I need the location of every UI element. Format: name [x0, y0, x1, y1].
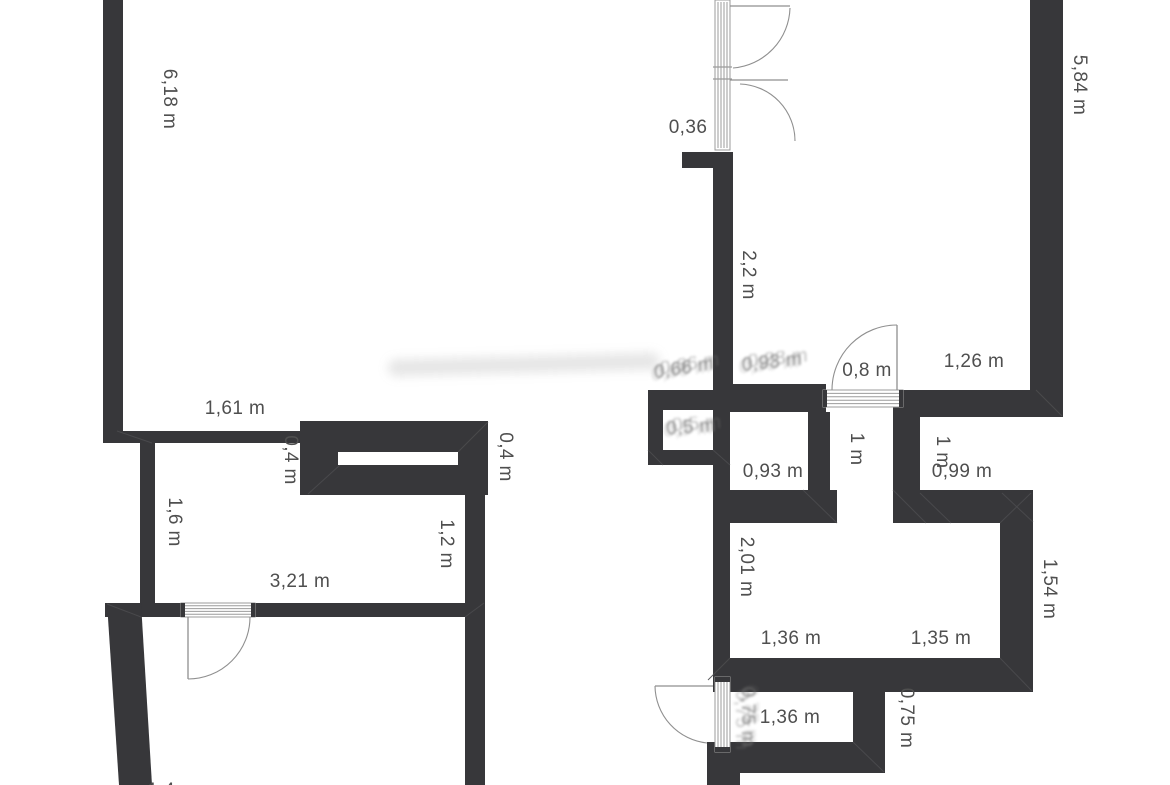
- entry-door-frame: [715, 0, 730, 150]
- bottomroom-bottom-wall-wall: [713, 658, 1033, 692]
- small-room-threshold: [181, 603, 255, 617]
- entry-door-lower-swing-arc: [740, 84, 795, 141]
- mid-band-right-wall: [713, 384, 826, 412]
- left-section-right-wall-wall: [465, 495, 485, 785]
- entry-door-upper-swing-arc: [733, 8, 790, 68]
- exit-door-threshold-cap: [715, 747, 730, 752]
- small-room-door-swing-arc: [188, 617, 250, 679]
- small-room-bottom-right-wall: [255, 603, 466, 617]
- door-0-8-threshold: [823, 390, 903, 407]
- door-0-8-swing-arc: [832, 325, 897, 390]
- small-room-threshold-cap: [251, 603, 255, 617]
- left-wall-top-wall: [103, 0, 123, 432]
- door-0-8-threshold-cap: [899, 390, 903, 407]
- room093-right-wall-wall: [808, 412, 830, 494]
- exit-door-threshold-cap: [715, 677, 730, 682]
- hall-wall-2-2-wall: [713, 152, 733, 392]
- bottomroom-top-left-wall-wall: [713, 490, 837, 523]
- small-room-threshold-cap: [181, 603, 185, 617]
- exit-corridor-right-wall-wall: [853, 692, 885, 773]
- exit-door-threshold: [715, 677, 730, 752]
- building-right-wall-wall: [1030, 0, 1063, 417]
- outer-angled-wall: [107, 603, 152, 785]
- door-0-8-threshold-cap: [823, 390, 827, 407]
- floor-plan: 6,18 m5,84 m0,362,2 m0,8 m1,26 m1,61 m0,…: [0, 0, 1170, 785]
- bottomroom-left-wall-wall: [713, 523, 730, 658]
- floor-plan-drawing: [0, 0, 1170, 785]
- shelf-slot: [338, 452, 458, 465]
- small-room-left-wall-wall: [140, 443, 155, 617]
- exit-door-swing-arc: [655, 686, 707, 743]
- bottomroom-top-right-wall-wall: [893, 490, 1033, 523]
